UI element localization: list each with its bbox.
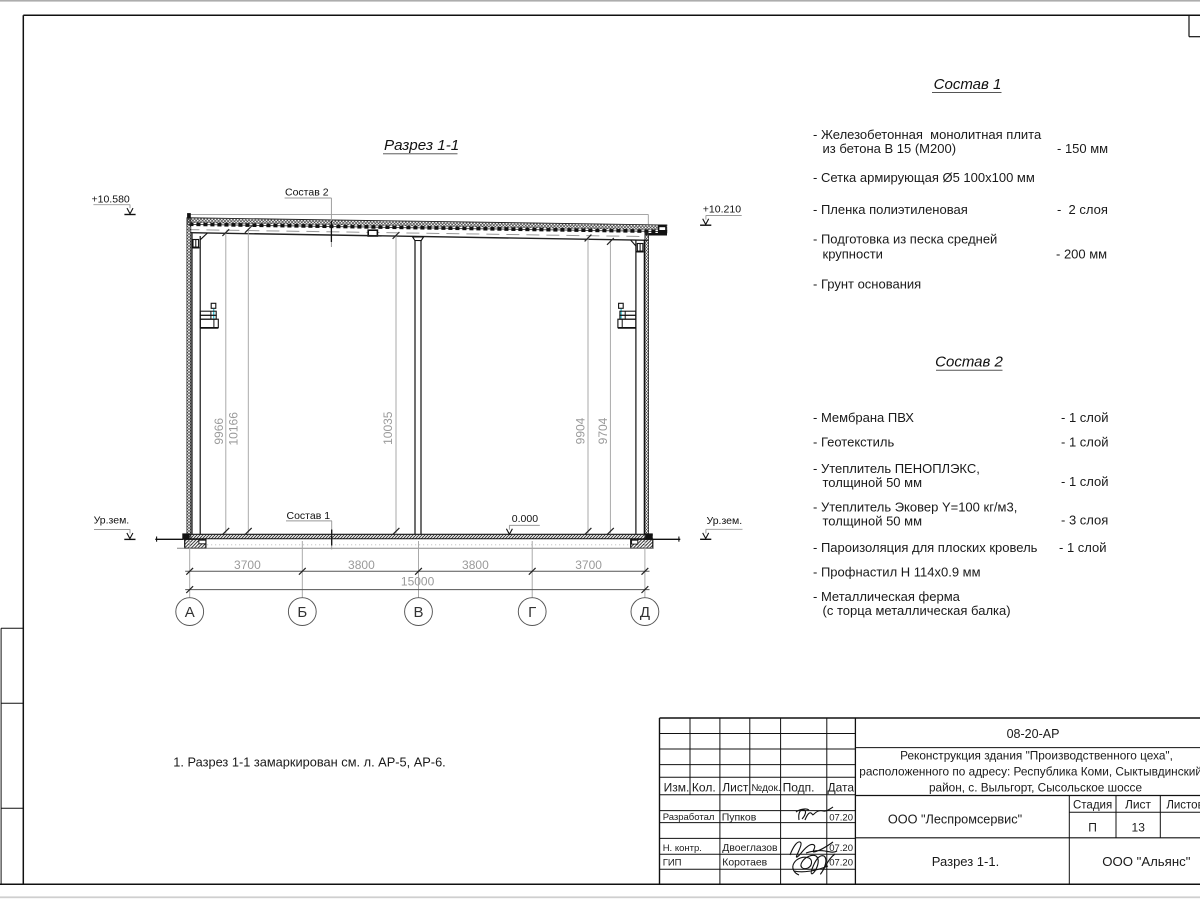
svg-text:Б: Б [297, 604, 307, 621]
svg-text:П: П [1088, 820, 1097, 834]
svg-text:Реконструкция здания "Производ: Реконструкция здания "Производственного … [900, 749, 1173, 763]
svg-text:Состав 2: Состав 2 [285, 186, 329, 198]
svg-text:В: В [413, 604, 423, 621]
svg-text:Ур.зем.: Ур.зем. [707, 515, 743, 527]
svg-text:Д: Д [640, 604, 650, 621]
svg-text:+10.210: +10.210 [703, 204, 741, 216]
svg-text:- Подготовка из песка средней: - Подготовка из песка средней [813, 231, 997, 246]
svg-text:Состав 1: Состав 1 [934, 76, 1002, 93]
svg-text:9966: 9966 [212, 418, 226, 445]
svg-text:Стадия: Стадия [1073, 800, 1112, 812]
svg-text:13: 13 [1132, 820, 1146, 834]
svg-text:- Утеплитель ПЕНОПЛЭКС,: - Утеплитель ПЕНОПЛЭКС, [813, 461, 980, 476]
svg-text:10166: 10166 [226, 412, 240, 446]
svg-text:Состав 2: Состав 2 [935, 354, 1003, 371]
svg-text:- Пароизоляция для плоских кро: - Пароизоляция для плоских кровель [813, 540, 1038, 555]
svg-text:- 1 слой: - 1 слой [1059, 540, 1107, 555]
svg-text:1. Разрез 1-1 замаркирован см.: 1. Разрез 1-1 замаркирован см. л. АР-5, … [173, 754, 445, 769]
svg-text:Дата: Дата [828, 781, 855, 795]
svg-text:№док.: №док. [751, 783, 780, 794]
svg-text:- Металлическая ферма: - Металлическая ферма [813, 589, 961, 604]
svg-text:толщиной 50 мм: толщиной 50 мм [823, 514, 923, 529]
svg-text:из бетона В 15 (М200): из бетона В 15 (М200) [823, 141, 957, 156]
svg-text:А: А [185, 604, 195, 621]
svg-text:Состав 1: Состав 1 [287, 510, 331, 522]
svg-text:- 2 слоя: - 2 слоя [1057, 202, 1108, 217]
svg-text:- 200 мм: - 200 мм [1056, 247, 1107, 262]
svg-text:крупности: крупности [823, 247, 883, 262]
svg-text:9904: 9904 [574, 417, 588, 444]
svg-text:Лист: Лист [722, 781, 749, 795]
svg-text:+10.580: +10.580 [92, 193, 130, 205]
svg-text:- Пленка полиэтиленовая: - Пленка полиэтиленовая [813, 202, 968, 217]
svg-text:3700: 3700 [234, 558, 261, 572]
svg-text:- Утеплитель Эковер Y=100 кг/м: - Утеплитель Эковер Y=100 кг/м3, [813, 500, 1017, 515]
svg-text:Кол.: Кол. [692, 781, 716, 795]
svg-text:07.20: 07.20 [829, 812, 853, 823]
svg-text:10035: 10035 [381, 411, 395, 445]
svg-text:расположенного по адресу: Респ: расположенного по адресу: Республика Ком… [859, 765, 1200, 779]
svg-text:ГИП: ГИП [663, 858, 682, 869]
svg-text:Изм.: Изм. [664, 781, 690, 795]
svg-text:Г: Г [528, 604, 536, 621]
svg-text:15000: 15000 [401, 575, 435, 589]
svg-text:- Геотекстиль: - Геотекстиль [813, 435, 894, 450]
svg-text:- 1 слой: - 1 слой [1061, 435, 1109, 450]
svg-text:Подп.: Подп. [783, 781, 815, 795]
svg-text:толщиной 50 мм: толщиной 50 мм [823, 475, 923, 490]
svg-text:Разработал: Разработал [663, 812, 715, 823]
svg-text:- 150 мм: - 150 мм [1057, 141, 1108, 156]
svg-text:Ур.зем.: Ур.зем. [94, 515, 130, 527]
svg-text:Разрез 1-1: Разрез 1-1 [384, 137, 459, 154]
svg-text:- 1 слой: - 1 слой [1061, 474, 1109, 489]
svg-text:- Грунт основания: - Грунт основания [813, 277, 921, 292]
svg-text:07.20: 07.20 [829, 858, 853, 869]
svg-text:(с торца металлическая балка): (с торца металлическая балка) [823, 603, 1011, 618]
svg-text:ООО "Альянс": ООО "Альянс" [1102, 854, 1190, 869]
svg-text:3700: 3700 [575, 558, 602, 572]
svg-text:Н. контр.: Н. контр. [663, 843, 702, 854]
svg-text:- Профнастил Н 114х0.9 мм: - Профнастил Н 114х0.9 мм [813, 564, 981, 579]
svg-text:ООО "Леспромсервис": ООО "Леспромсервис" [888, 813, 1022, 827]
svg-text:Разрез 1-1.: Разрез 1-1. [932, 854, 999, 869]
svg-text:район, с. Выльгорт, Сысольское: район, с. Выльгорт, Сысольское шоссе [929, 781, 1143, 795]
svg-text:0.000: 0.000 [512, 513, 538, 525]
svg-text:3800: 3800 [462, 558, 489, 572]
svg-text:- Мембрана ПВХ: - Мембрана ПВХ [813, 410, 914, 425]
svg-text:- Сетка армирующая Ø5 100х100: - Сетка армирующая Ø5 100х100 мм [813, 170, 1035, 185]
svg-text:Пупков: Пупков [722, 812, 757, 824]
svg-text:Лист: Лист [1125, 798, 1152, 812]
svg-text:Листов: Листов [1166, 800, 1200, 812]
svg-text:Двоеглазов: Двоеглазов [722, 843, 778, 854]
svg-text:9704: 9704 [596, 417, 610, 444]
svg-text:- 1 слой: - 1 слой [1061, 410, 1109, 425]
svg-text:08-20-АР: 08-20-АР [1007, 727, 1060, 741]
svg-text:Коротаев: Коротаев [722, 858, 767, 869]
svg-text:- 3 слоя: - 3 слоя [1061, 513, 1108, 528]
svg-text:3800: 3800 [348, 558, 375, 572]
